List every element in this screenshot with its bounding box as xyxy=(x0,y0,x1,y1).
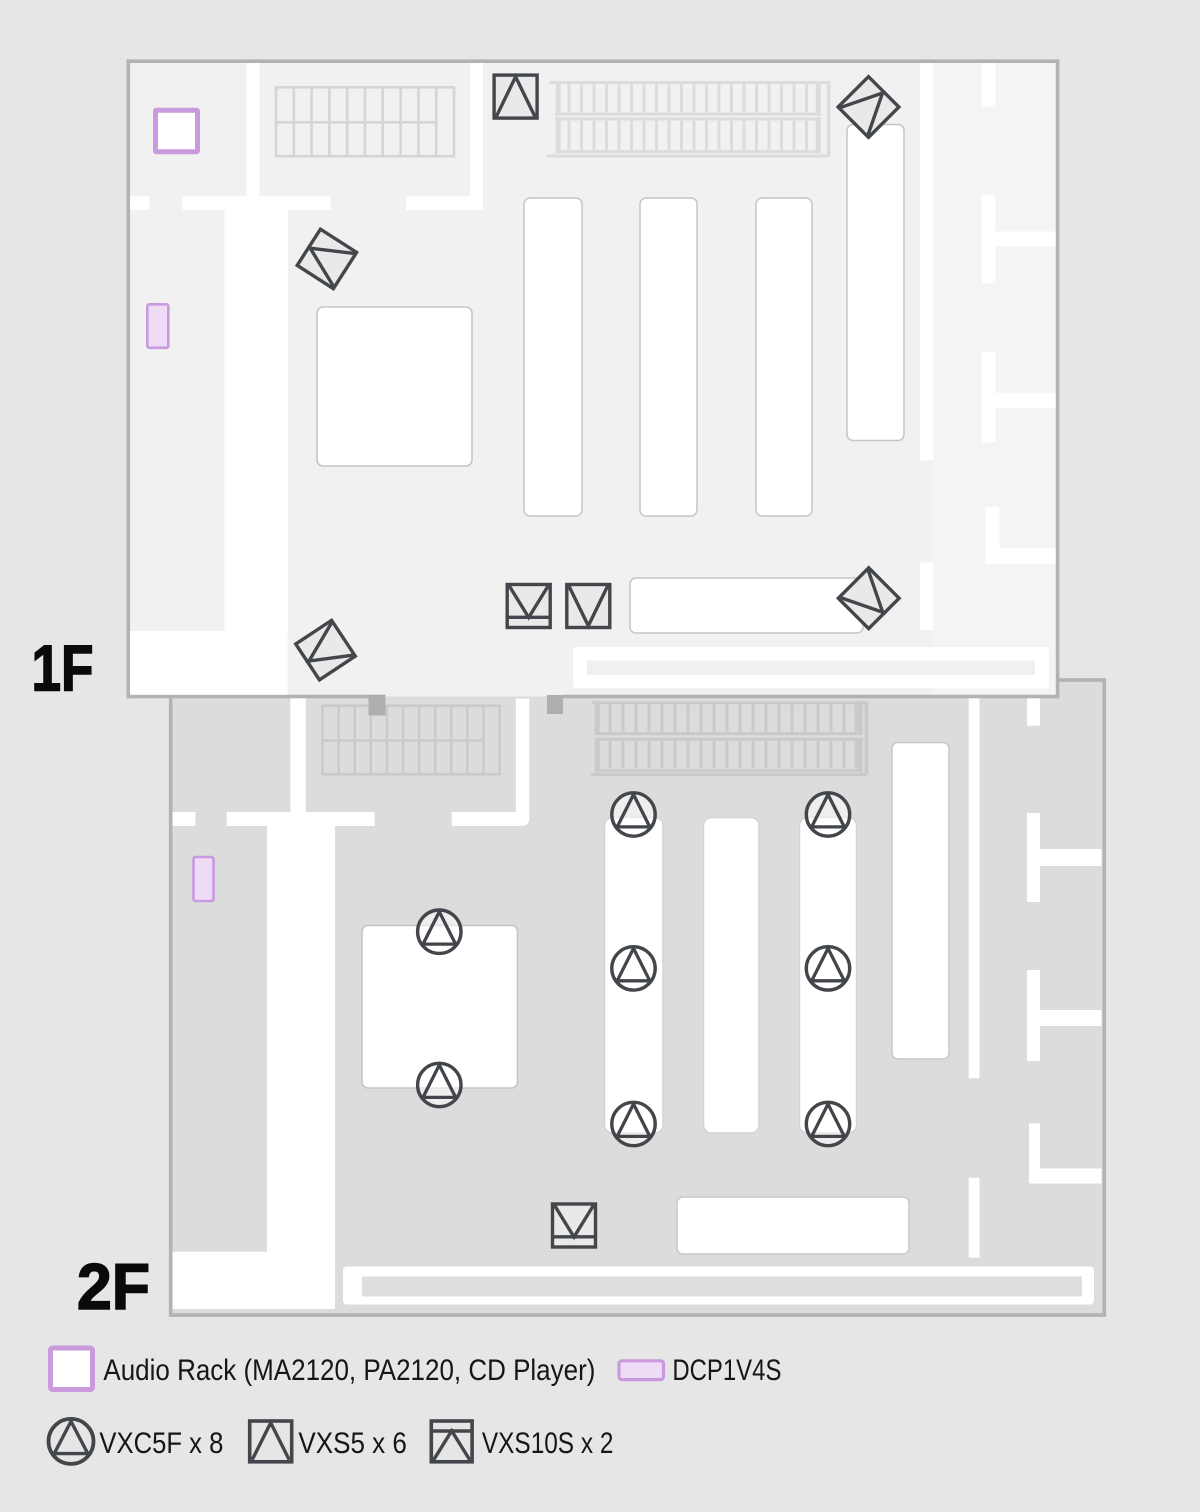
svg-text:2F: 2F xyxy=(77,1250,150,1323)
svg-text:VXC5F x 8: VXC5F x 8 xyxy=(99,1427,223,1460)
svg-text:VXS5 x 6: VXS5 x 6 xyxy=(298,1427,407,1460)
svg-text:DCP1V4S: DCP1V4S xyxy=(672,1354,781,1387)
svg-text:VXS10S x 2: VXS10S x 2 xyxy=(482,1427,614,1460)
svg-text:1F: 1F xyxy=(32,632,94,705)
svg-text:Audio Rack (MA2120, PA2120, CD: Audio Rack (MA2120, PA2120, CD Player) xyxy=(103,1354,595,1387)
